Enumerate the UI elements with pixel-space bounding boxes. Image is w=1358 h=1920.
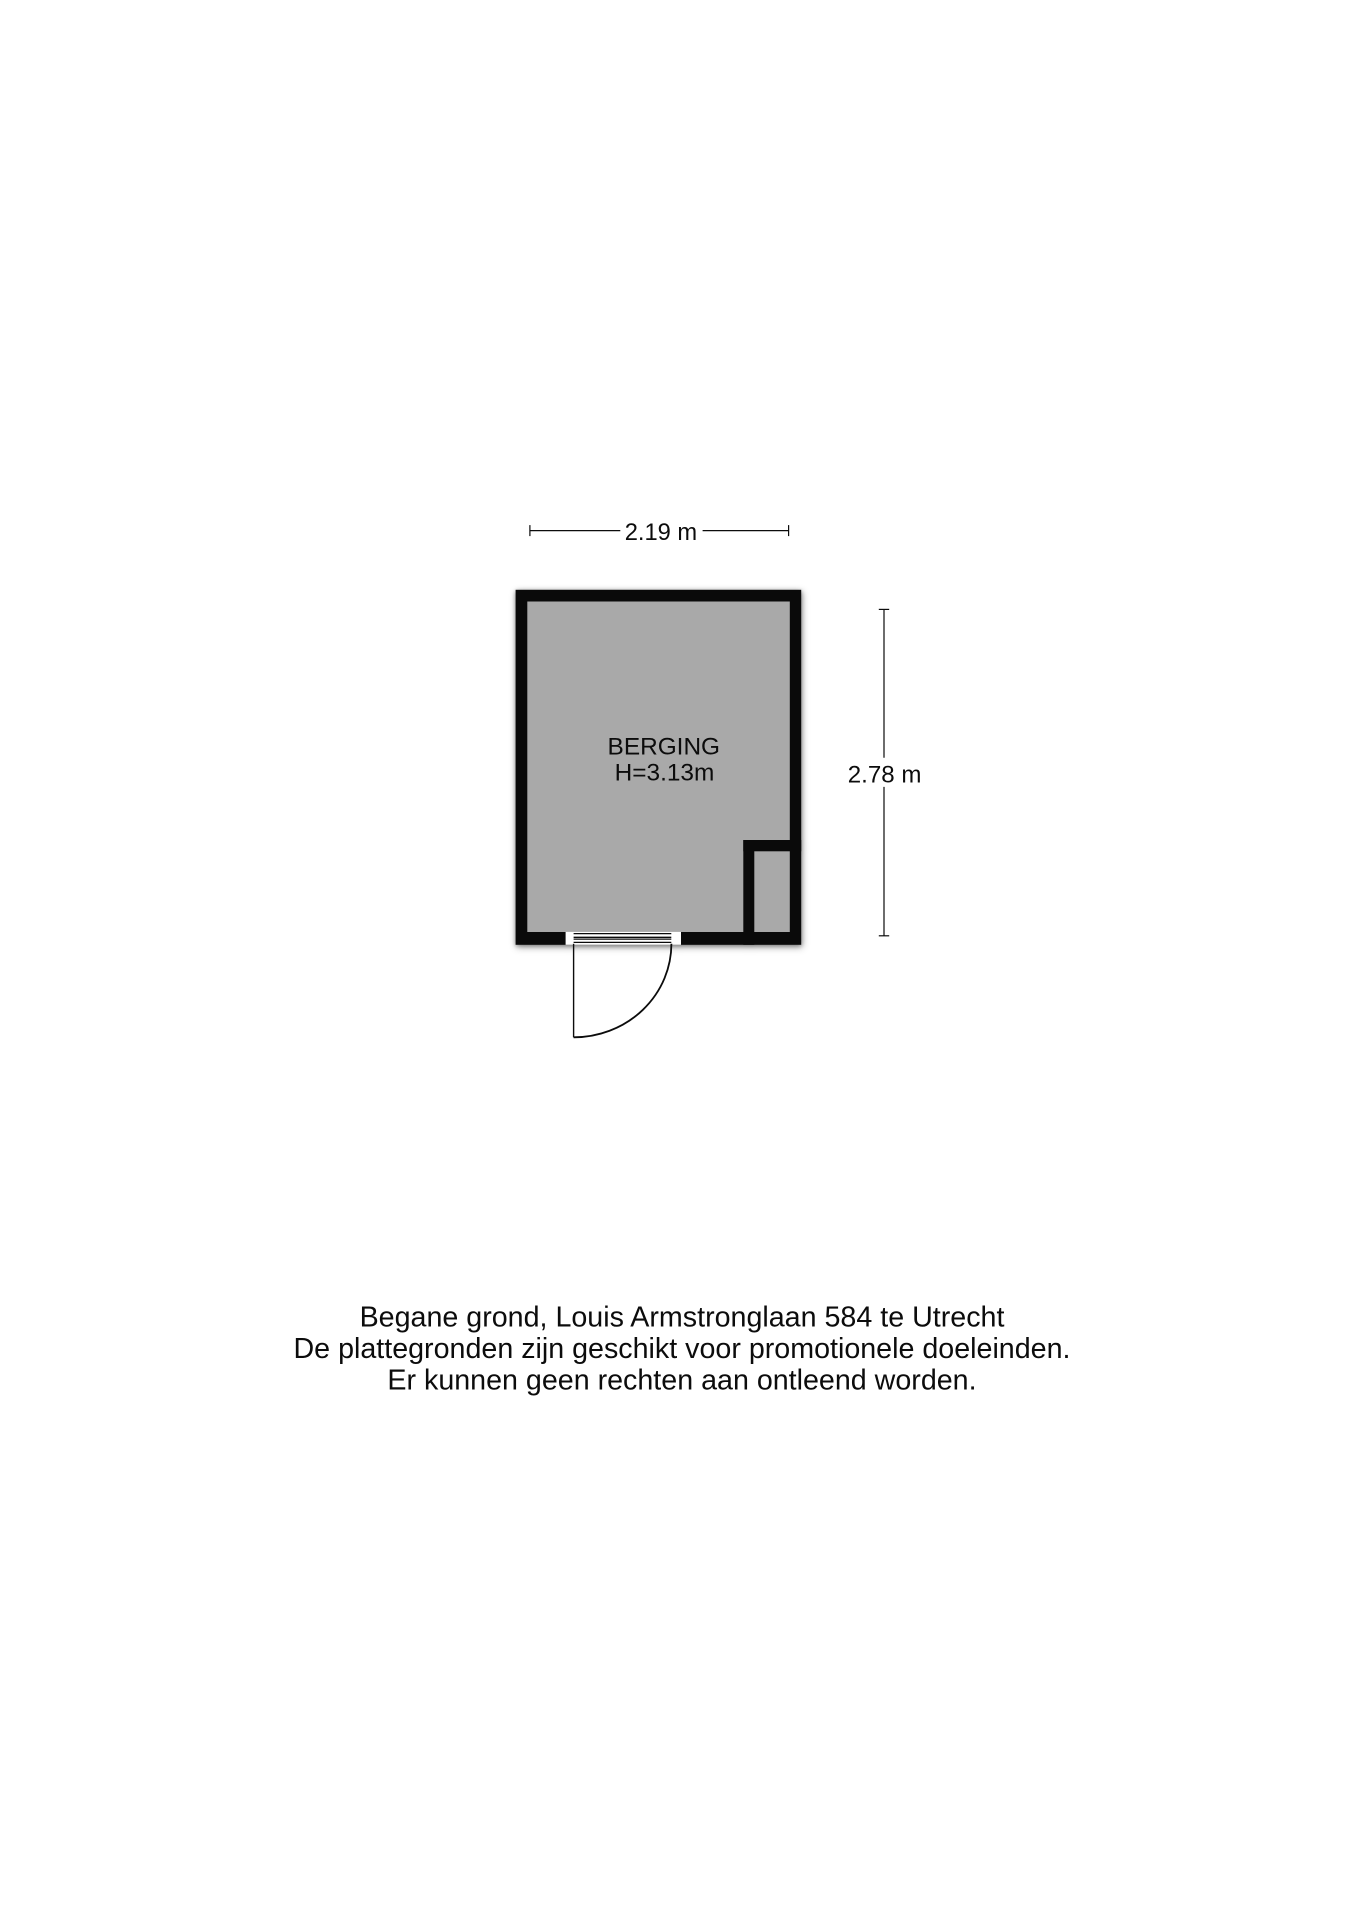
svg-text:De plattegronden zijn geschikt: De plattegronden zijn geschikt voor prom… bbox=[294, 1333, 1071, 1365]
svg-text:2.19 m: 2.19 m bbox=[625, 520, 697, 546]
svg-text:BERGING: BERGING bbox=[608, 734, 721, 761]
svg-text:Er kunnen geen rechten aan ont: Er kunnen geen rechten aan ontleend word… bbox=[387, 1365, 976, 1397]
svg-text:H=3.13m: H=3.13m bbox=[615, 759, 715, 786]
svg-text:2.78 m: 2.78 m bbox=[848, 762, 922, 789]
svg-text:Begane grond, Louis Armstrongl: Begane grond, Louis Armstronglaan 584 te… bbox=[360, 1302, 1005, 1334]
